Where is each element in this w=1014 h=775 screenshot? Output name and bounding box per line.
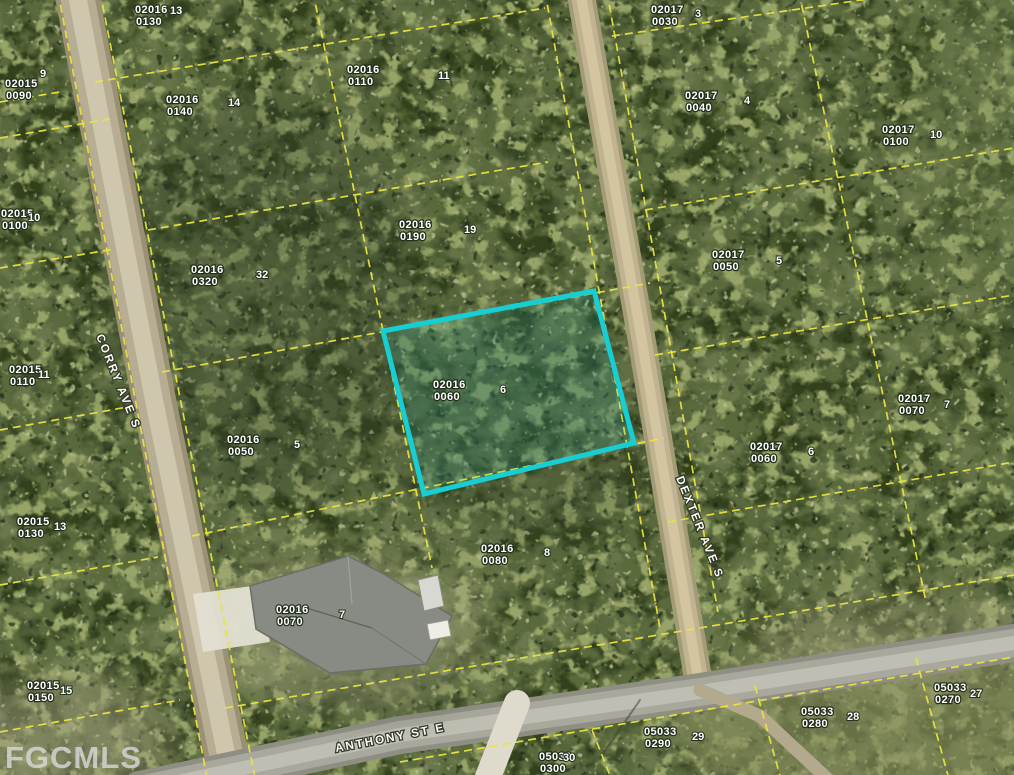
parcel-block-label: 02017 (882, 124, 915, 136)
parcel-lot-label: 0110 (348, 76, 373, 88)
parcel-lot-label: 0150 (28, 692, 54, 704)
parcel-lot-number: 8 (544, 547, 550, 559)
parcel-lot-label: 0100 (2, 220, 28, 232)
parcel-lot-label: 0080 (482, 555, 508, 567)
parcel-lot-number: 13 (170, 5, 182, 17)
parcel-lot-number: 29 (692, 731, 704, 743)
highlighted-parcel-lot-number: 6 (500, 384, 506, 396)
parcel-block-label: 02017 (750, 441, 783, 453)
parcel-lot-number: 4 (744, 95, 751, 107)
parcel-block-label: 05033 (801, 706, 834, 718)
parcel-lot-label: 0030 (652, 16, 678, 28)
parcel-lot-number: 5 (294, 439, 300, 451)
parcel-lot-number: 9 (40, 68, 46, 80)
parcel-lot-label: 0270 (935, 694, 961, 706)
aerial-parcel-map[interactable]: 02016 0060 6 020160130130201601401402016… (0, 0, 1014, 775)
parcel-lot-label: 0110 (10, 376, 35, 388)
parcel-lot-number: 30 (563, 752, 575, 764)
parcel-block-label: 02017 (685, 90, 718, 102)
parcel-lot-number: 11 (38, 369, 50, 381)
parcel-lot-number: 11 (438, 70, 450, 82)
parcel-lot-number: 27 (970, 688, 982, 700)
parcel-block-label: 02015 (27, 680, 60, 692)
parcel-lot-label: 0050 (228, 446, 254, 458)
parcel-lot-label: 0280 (802, 718, 828, 730)
parcel-lot-number: 15 (60, 685, 72, 697)
parcel-lot-number: 13 (54, 521, 66, 533)
parcel-lot-label: 0300 (540, 763, 566, 775)
mls-watermark: FGCMLS (5, 740, 142, 775)
parcel-lot-number: 3 (695, 8, 701, 20)
parcel-lot-number: 32 (256, 269, 268, 281)
highlighted-parcel-block: 02016 (433, 379, 466, 391)
parcel-block-label: 02015 (17, 516, 50, 528)
parcel-lot-number: 14 (228, 97, 241, 109)
parcel-block-label: 02016 (276, 604, 309, 616)
parcel-lot-label: 0190 (400, 231, 426, 243)
parcel-block-label: 02016 (227, 434, 260, 446)
parcel-lot-label: 0140 (167, 106, 193, 118)
parcel-lot-number: 10 (930, 129, 942, 141)
parcel-lot-number: 6 (808, 446, 814, 458)
parcel-lot-label: 0130 (18, 528, 44, 540)
parcel-block-label: 02015 (5, 78, 38, 90)
parcel-lot-number: 19 (464, 224, 476, 236)
parcel-block-label: 02016 (399, 219, 432, 231)
parcel-lot-label: 0060 (751, 453, 777, 465)
parcel-lot-number: 7 (339, 609, 345, 621)
parcel-lot-number: 28 (847, 711, 859, 723)
car (427, 620, 451, 640)
parcel-lot-label: 0100 (883, 136, 909, 148)
parcel-lot-number: 10 (28, 212, 40, 224)
parcel-lot-label: 0070 (899, 405, 925, 417)
parcel-lot-label: 0090 (6, 90, 32, 102)
parcel-block-label: 02017 (898, 393, 931, 405)
parcel-block-label: 02017 (651, 4, 684, 16)
parcel-block-label: 05033 (644, 726, 677, 738)
parcel-block-label: 02017 (712, 249, 745, 261)
parcel-lot-label: 0050 (713, 261, 739, 273)
parcel-lot-label: 0070 (277, 616, 303, 628)
parcel-block-label: 02016 (481, 543, 514, 555)
parcel-lot-number: 7 (944, 399, 950, 411)
parcel-lot-label: 0320 (192, 276, 218, 288)
parcel-block-label: 02015 (9, 364, 42, 376)
highlighted-parcel-lot: 0060 (434, 391, 460, 403)
parcel-block-label: 05033 (934, 682, 967, 694)
parcel-lot-label: 0040 (686, 102, 712, 114)
parcel-lot-label: 0130 (136, 16, 162, 28)
parcel-block-label: 02016 (347, 64, 380, 76)
parcel-block-label: 02016 (191, 264, 224, 276)
parcel-block-label: 02016 (135, 4, 168, 16)
map-canvas[interactable]: 02016 0060 6 020160130130201601401402016… (0, 0, 1014, 775)
parcel-lot-number: 5 (776, 255, 782, 267)
parcel-block-label: 02016 (166, 94, 199, 106)
parcel-lot-label: 0290 (645, 738, 671, 750)
